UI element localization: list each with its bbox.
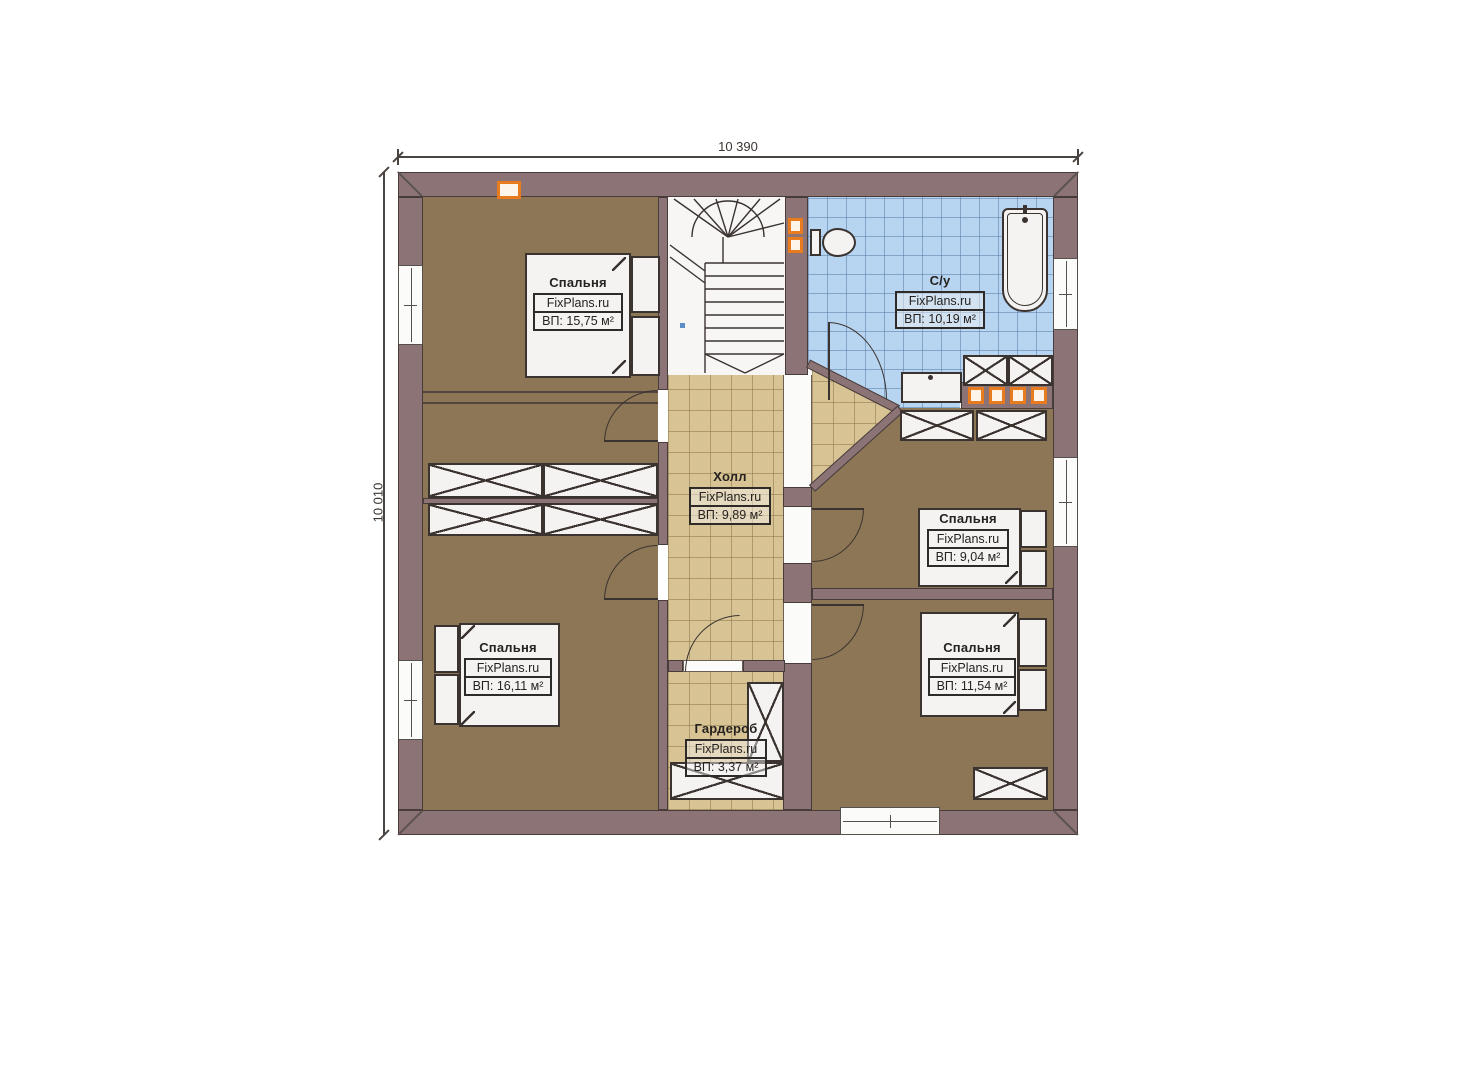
- door-leaf: [604, 598, 658, 600]
- door-leaf: [812, 508, 864, 510]
- room-label-bedroom-right-middle: Спальня FixPlans.ru ВП: 9,04 м²: [906, 511, 1030, 567]
- window: [1053, 258, 1078, 330]
- wall-block: [783, 563, 812, 603]
- dimension-end-bar: [1077, 149, 1079, 165]
- room-label-bathroom: С/у FixPlans.ru ВП: 10,19 м²: [878, 273, 1002, 329]
- room-name: Гардероб: [694, 721, 757, 736]
- dimension-width-label: 10 390: [698, 139, 778, 154]
- wall-wardrobe-top-right: [743, 660, 785, 672]
- area-text: ВП: 16,11 м²: [466, 676, 551, 694]
- room-label-hall: Холл FixPlans.ru ВП: 9,89 м²: [668, 469, 792, 525]
- wardrobe-unit: [900, 410, 974, 441]
- vent: [788, 237, 803, 253]
- floorplan-screenshot: 10 390 10 010: [0, 0, 1473, 1080]
- room-info-box: FixPlans.ru ВП: 11,54 м²: [928, 658, 1017, 696]
- bathroom-cabinet: [1008, 355, 1053, 386]
- room-name: С/у: [930, 273, 951, 288]
- wall-wardrobe-top-left: [668, 660, 683, 672]
- sink-faucet: [928, 375, 933, 380]
- staircase: [668, 197, 785, 375]
- room-info-box: FixPlans.ru ВП: 9,89 м²: [689, 487, 772, 525]
- dimension-height-label: 10 010: [371, 463, 386, 543]
- bed-fold-mark: [612, 257, 626, 271]
- door-leaf: [828, 322, 830, 400]
- dimension-end-bar: [397, 149, 399, 165]
- closet-unit: [543, 503, 658, 536]
- wall-between-right-bedrooms: [812, 588, 1053, 600]
- wall-hall-left-middle: [658, 442, 668, 545]
- dimension-line-top: [398, 156, 1078, 158]
- area-text: ВП: 11,54 м²: [930, 676, 1015, 694]
- floor-plan: Спальня FixPlans.ru ВП: 15,75 м² С/у Fix…: [398, 172, 1078, 835]
- brand-text: FixPlans.ru: [466, 660, 551, 676]
- radiator-segment: [1010, 387, 1026, 404]
- wall-exterior-bottom: [398, 810, 1078, 835]
- closet-unit: [428, 503, 543, 536]
- closet-unit: [428, 463, 543, 498]
- brand-text: FixPlans.ru: [691, 489, 770, 505]
- brand-text: FixPlans.ru: [535, 295, 621, 311]
- brand-text: FixPlans.ru: [930, 660, 1015, 676]
- wardrobe-unit: [976, 410, 1047, 441]
- radiator-segment: [968, 387, 984, 404]
- closet-unit: [543, 463, 658, 498]
- area-text: ВП: 15,75 м²: [535, 311, 621, 329]
- brand-text: FixPlans.ru: [897, 293, 983, 309]
- bathtub-drain: [1022, 217, 1028, 223]
- door-leaf: [812, 604, 864, 606]
- bathtub-faucet: [1023, 205, 1027, 213]
- radiator-segment: [1031, 387, 1047, 404]
- bed-fold-mark: [1003, 614, 1016, 627]
- room-info-box: FixPlans.ru ВП: 16,11 м²: [464, 658, 553, 696]
- room-label-bedroom-bottom-left: Спальня FixPlans.ru ВП: 16,11 м²: [446, 640, 570, 696]
- room-info-box: FixPlans.ru ВП: 3,37 м²: [685, 739, 768, 777]
- wardrobe-unit: [973, 767, 1048, 800]
- bathtub-inner: [1007, 213, 1043, 306]
- window: [1053, 457, 1078, 547]
- room-info-box: FixPlans.ru ВП: 10,19 м²: [895, 291, 985, 329]
- window: [398, 660, 423, 740]
- ceiling-break-line: [423, 391, 658, 393]
- room-name: Спальня: [943, 640, 1001, 655]
- room-label-wardrobe: Гардероб FixPlans.ru ВП: 3,37 м²: [664, 721, 788, 777]
- wall-hall-left-lower: [658, 600, 668, 810]
- bed-fold-mark: [461, 625, 475, 639]
- bed-fold-mark: [1005, 571, 1018, 584]
- door-leaf: [604, 440, 658, 442]
- area-text: ВП: 3,37 м²: [687, 757, 766, 775]
- vent: [497, 181, 521, 199]
- bed-fold-mark: [1003, 701, 1016, 714]
- room-name: Спальня: [549, 275, 607, 290]
- room-name: Спальня: [939, 511, 997, 526]
- radiator-segment: [989, 387, 1005, 404]
- room-name: Холл: [713, 469, 746, 484]
- window: [840, 807, 940, 835]
- brand-text: FixPlans.ru: [687, 741, 766, 757]
- vent: [788, 218, 803, 234]
- area-text: ВП: 10,19 м²: [897, 309, 983, 327]
- brand-text: FixPlans.ru: [929, 531, 1008, 547]
- bed-fold-mark: [612, 360, 626, 374]
- room-label-bedroom-bottom-right: Спальня FixPlans.ru ВП: 11,54 м²: [910, 640, 1034, 696]
- area-text: ВП: 9,04 м²: [929, 547, 1008, 565]
- room-label-bedroom-top-left: Спальня FixPlans.ru ВП: 15,75 м²: [516, 275, 640, 331]
- toilet-tank: [810, 229, 821, 256]
- area-text: ВП: 9,89 м²: [691, 505, 770, 523]
- bathroom-cabinet: [963, 355, 1008, 386]
- window: [398, 265, 423, 345]
- room-info-box: FixPlans.ru ВП: 9,04 м²: [927, 529, 1010, 567]
- room-name: Спальня: [479, 640, 537, 655]
- room-info-box: FixPlans.ru ВП: 15,75 м²: [533, 293, 623, 331]
- bed-fold-mark: [461, 711, 475, 725]
